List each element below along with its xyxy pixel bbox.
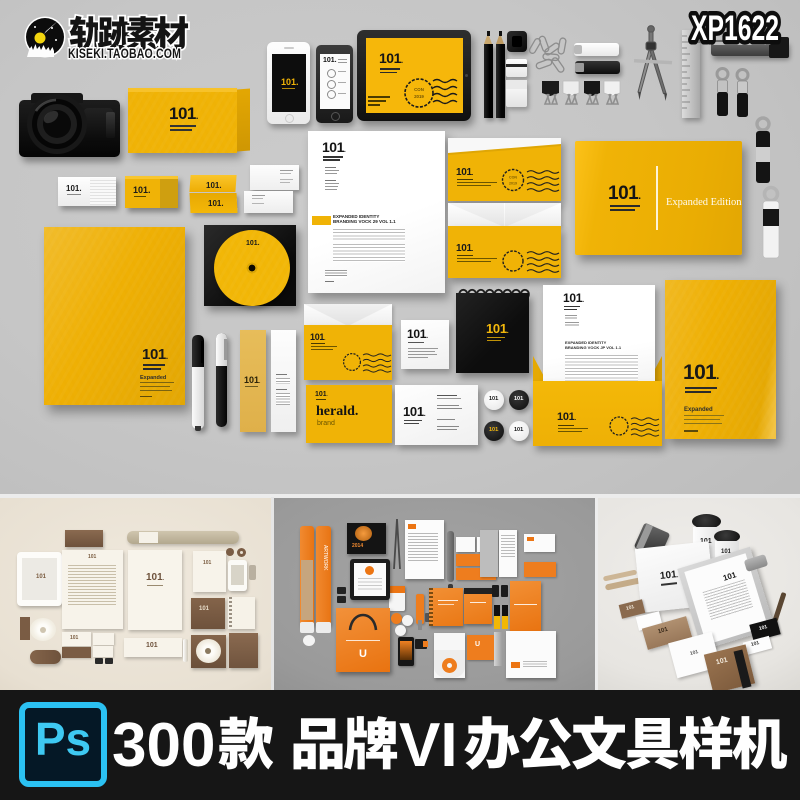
- svg-text:CON: CON: [509, 176, 517, 180]
- svg-text:VI: VI: [399, 711, 458, 780]
- svg-text:300: 300: [112, 711, 215, 780]
- svg-text:XP1622: XP1622: [691, 9, 779, 48]
- svg-text:CON: CON: [414, 87, 424, 92]
- svg-text:2019: 2019: [509, 182, 517, 186]
- svg-text:KISEKI.TAOBAO.COM: KISEKI.TAOBAO.COM: [68, 46, 181, 62]
- svg-text:2019: 2019: [414, 94, 424, 99]
